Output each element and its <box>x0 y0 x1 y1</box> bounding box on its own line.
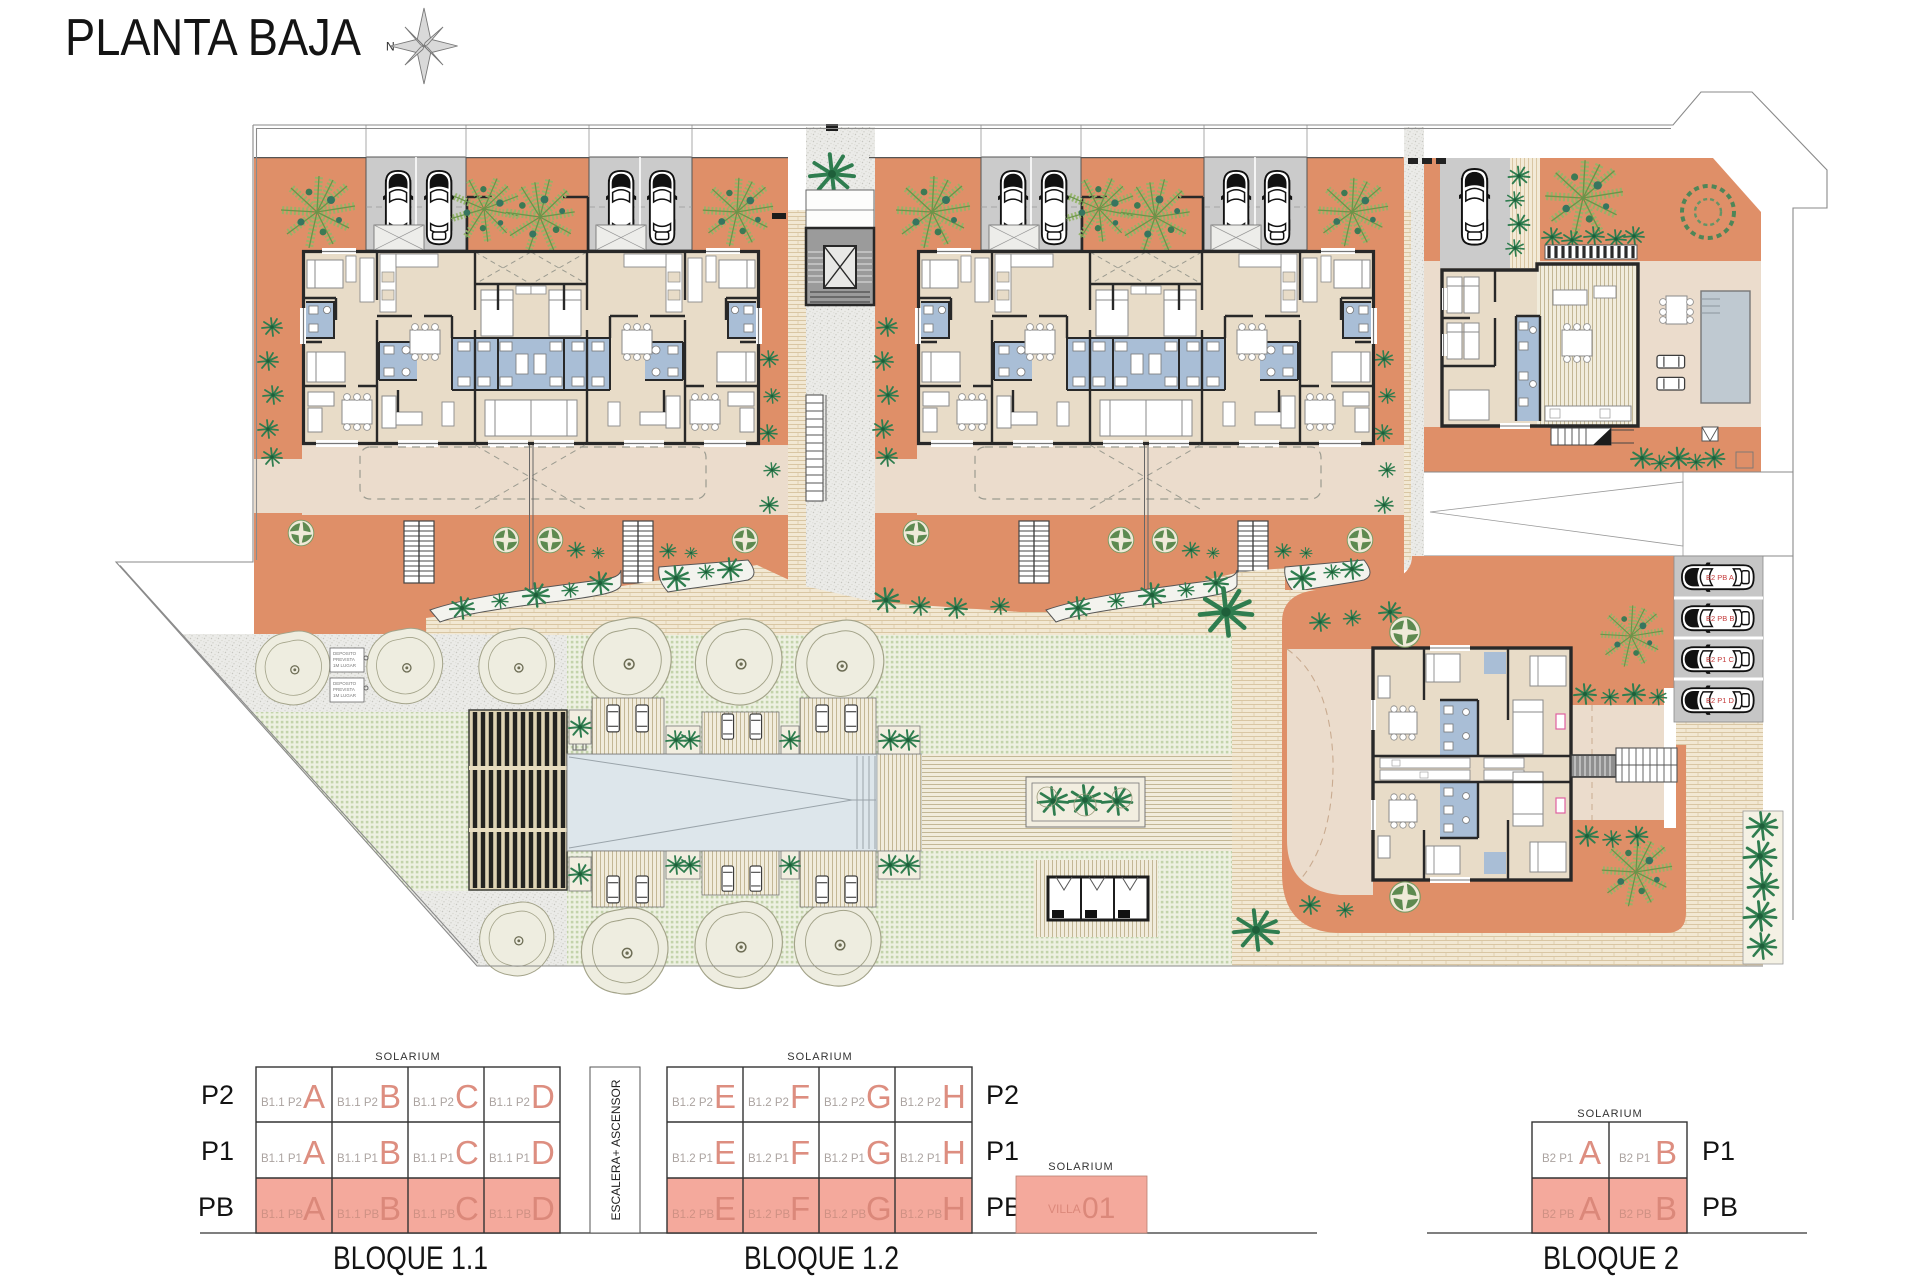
svg-text:C: C <box>455 1078 479 1115</box>
svg-text:B1.1 PB: B1.1 PB <box>337 1209 380 1221</box>
svg-text:B2 PB B: B2 PB B <box>1706 614 1734 623</box>
svg-text:A: A <box>1579 1134 1601 1171</box>
svg-text:01: 01 <box>1082 1192 1115 1225</box>
svg-text:B1.2 P2: B1.2 P2 <box>824 1097 865 1109</box>
svg-text:H: H <box>942 1078 966 1115</box>
svg-text:SOLARIUM: SOLARIUM <box>787 1051 852 1063</box>
svg-text:SOLARIUM: SOLARIUM <box>1577 1108 1642 1120</box>
svg-text:G: G <box>866 1134 892 1171</box>
svg-text:PB: PB <box>198 1192 234 1222</box>
svg-text:B1.2 PB: B1.2 PB <box>900 1209 943 1221</box>
svg-text:B1.1 P2: B1.1 P2 <box>337 1097 378 1109</box>
svg-text:C: C <box>455 1190 479 1227</box>
svg-text:SOLARIUM: SOLARIUM <box>375 1051 440 1063</box>
svg-text:PREVISTA: PREVISTA <box>333 657 355 662</box>
svg-text:P1: P1 <box>1702 1136 1735 1166</box>
svg-text:C: C <box>455 1134 479 1171</box>
svg-text:E: E <box>714 1078 736 1115</box>
svg-text:F: F <box>790 1190 810 1227</box>
svg-text:B1.2 P1: B1.2 P1 <box>672 1153 713 1165</box>
svg-text:B1.1 PB: B1.1 PB <box>489 1209 532 1221</box>
svg-text:B1.1 P1: B1.1 P1 <box>261 1153 302 1165</box>
svg-text:1M LUGAR: 1M LUGAR <box>333 693 357 698</box>
svg-text:B1.2 P1: B1.2 P1 <box>748 1153 789 1165</box>
svg-text:B1.1 P2: B1.1 P2 <box>489 1097 530 1109</box>
svg-text:DEPOSITO: DEPOSITO <box>333 651 357 656</box>
svg-text:B2 P1 D: B2 P1 D <box>1706 696 1735 705</box>
svg-text:H: H <box>942 1190 966 1227</box>
svg-text:DEPOSITO: DEPOSITO <box>333 681 357 686</box>
svg-text:D: D <box>531 1134 555 1171</box>
svg-text:B2 P1: B2 P1 <box>1542 1153 1573 1165</box>
svg-text:BLOQUE 2: BLOQUE 2 <box>1543 1240 1679 1276</box>
svg-text:P1: P1 <box>986 1136 1019 1166</box>
svg-text:B1.1 P1: B1.1 P1 <box>413 1153 454 1165</box>
svg-text:B1.1 P2: B1.1 P2 <box>261 1097 302 1109</box>
svg-text:P2: P2 <box>986 1080 1019 1110</box>
svg-text:B1.2 PB: B1.2 PB <box>672 1209 715 1221</box>
svg-text:PLANTA BAJA: PLANTA BAJA <box>65 9 361 67</box>
svg-text:B2 P1 C: B2 P1 C <box>1706 655 1735 664</box>
svg-text:1M LUGAR: 1M LUGAR <box>333 663 357 668</box>
svg-text:B2 PB: B2 PB <box>1619 1209 1652 1221</box>
svg-text:PB: PB <box>1702 1192 1738 1222</box>
svg-text:F: F <box>790 1078 810 1115</box>
svg-text:G: G <box>866 1078 892 1115</box>
svg-text:D: D <box>531 1078 555 1115</box>
svg-text:ESCALERA+ ASCENSOR: ESCALERA+ ASCENSOR <box>609 1079 623 1220</box>
svg-text:B: B <box>379 1078 401 1115</box>
svg-text:B: B <box>1655 1134 1677 1171</box>
svg-text:B: B <box>379 1134 401 1171</box>
svg-text:B1.1 P1: B1.1 P1 <box>489 1153 530 1165</box>
svg-text:PREVISTA: PREVISTA <box>333 687 355 692</box>
svg-text:BLOQUE 1.1: BLOQUE 1.1 <box>333 1240 488 1276</box>
svg-text:E: E <box>714 1134 736 1171</box>
svg-text:B1.2 P1: B1.2 P1 <box>900 1153 941 1165</box>
svg-text:B1.2 PB: B1.2 PB <box>748 1209 791 1221</box>
svg-text:VILLA: VILLA <box>1048 1202 1081 1216</box>
svg-text:A: A <box>303 1078 325 1115</box>
svg-text:SOLARIUM: SOLARIUM <box>1048 1161 1113 1173</box>
svg-text:G: G <box>866 1190 892 1227</box>
svg-text:B1.1 PB: B1.1 PB <box>261 1209 304 1221</box>
svg-text:B1.1 P1: B1.1 P1 <box>337 1153 378 1165</box>
svg-text:B1.2 P2: B1.2 P2 <box>672 1097 713 1109</box>
svg-text:B1.2 PB: B1.2 PB <box>824 1209 867 1221</box>
svg-text:P2: P2 <box>201 1080 234 1110</box>
svg-text:BLOQUE 1.2: BLOQUE 1.2 <box>744 1240 899 1276</box>
svg-text:B2 P1: B2 P1 <box>1619 1153 1650 1165</box>
svg-text:F: F <box>790 1134 810 1171</box>
svg-text:A: A <box>303 1190 325 1227</box>
svg-text:B1.2 P1: B1.2 P1 <box>824 1153 865 1165</box>
svg-text:B: B <box>379 1190 401 1227</box>
svg-text:B2 PB: B2 PB <box>1542 1209 1575 1221</box>
svg-text:B2 PB A: B2 PB A <box>1706 573 1734 582</box>
svg-text:A: A <box>303 1134 325 1171</box>
svg-text:B1.1 P2: B1.1 P2 <box>413 1097 454 1109</box>
svg-text:P1: P1 <box>201 1136 234 1166</box>
svg-text:H: H <box>942 1134 966 1171</box>
svg-text:B1.1 PB: B1.1 PB <box>413 1209 456 1221</box>
svg-text:A: A <box>1579 1190 1601 1227</box>
svg-text:B1.2 P2: B1.2 P2 <box>900 1097 941 1109</box>
svg-text:B: B <box>1655 1190 1677 1227</box>
svg-text:D: D <box>531 1190 555 1227</box>
svg-text:E: E <box>714 1190 736 1227</box>
svg-text:B1.2 P2: B1.2 P2 <box>748 1097 789 1109</box>
